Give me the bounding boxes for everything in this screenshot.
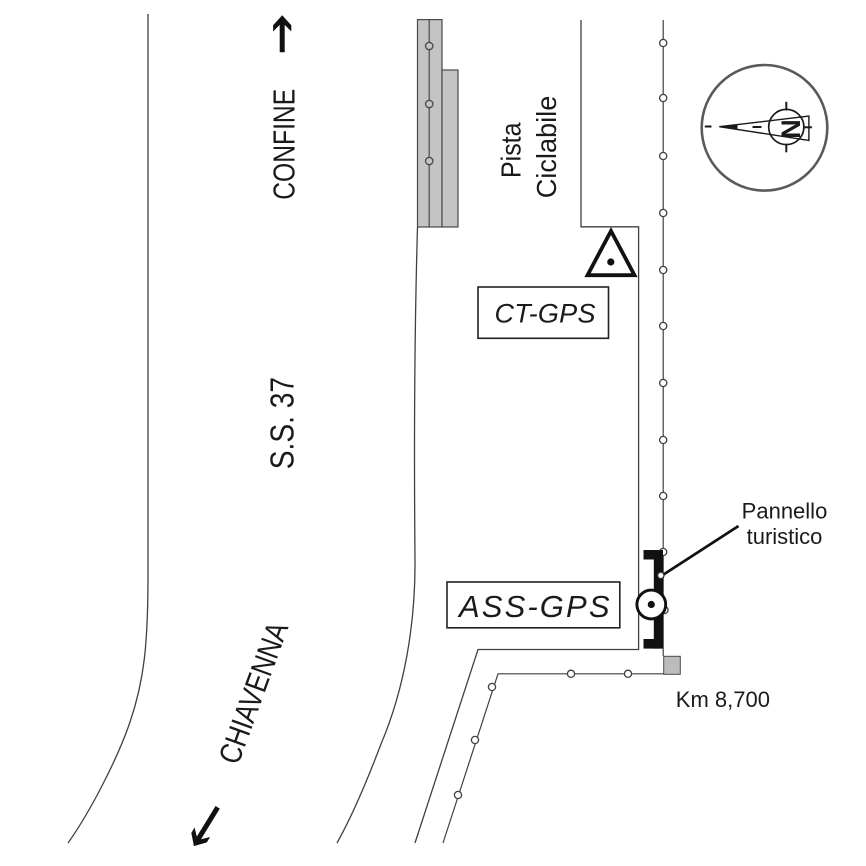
svg-text:Pista: Pista — [496, 122, 527, 178]
svg-text:N: N — [776, 119, 806, 139]
svg-text:CT-GPS: CT-GPS — [495, 299, 596, 329]
svg-text:turistico: turistico — [747, 524, 823, 549]
svg-text:Ciclabile: Ciclabile — [531, 96, 562, 199]
svg-text:S.S. 37: S.S. 37 — [264, 377, 301, 469]
svg-text:Pannello: Pannello — [742, 499, 828, 524]
svg-text:Km 8,700: Km 8,700 — [676, 687, 770, 712]
svg-text:CONFINE: CONFINE — [267, 89, 301, 200]
